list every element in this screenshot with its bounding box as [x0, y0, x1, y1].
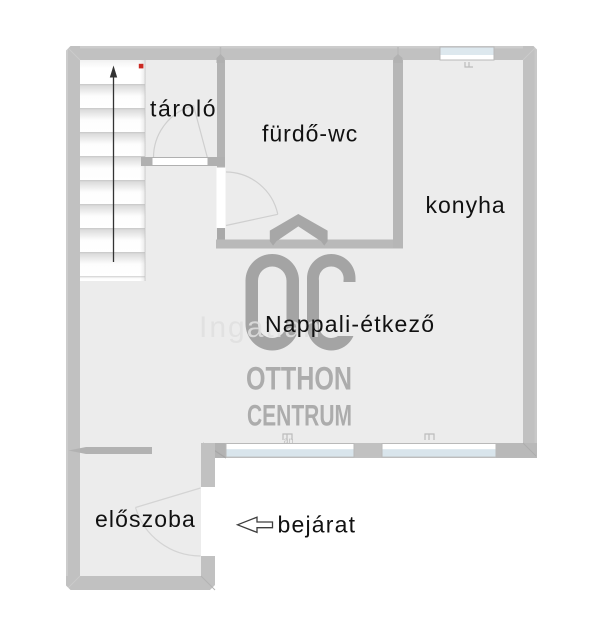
svg-text:CENTRUM: CENTRUM: [247, 400, 352, 433]
svg-text:Nappali-étkező: Nappali-étkező: [265, 311, 435, 337]
svg-text:bejárat: bejárat: [278, 512, 357, 538]
svg-text:konyha: konyha: [426, 192, 506, 218]
svg-text:előszoba: előszoba: [95, 506, 196, 532]
svg-text:OTTHON: OTTHON: [246, 361, 352, 397]
svg-text:tároló: tároló: [150, 96, 217, 122]
svg-text:fürdő-wc: fürdő-wc: [262, 121, 358, 147]
